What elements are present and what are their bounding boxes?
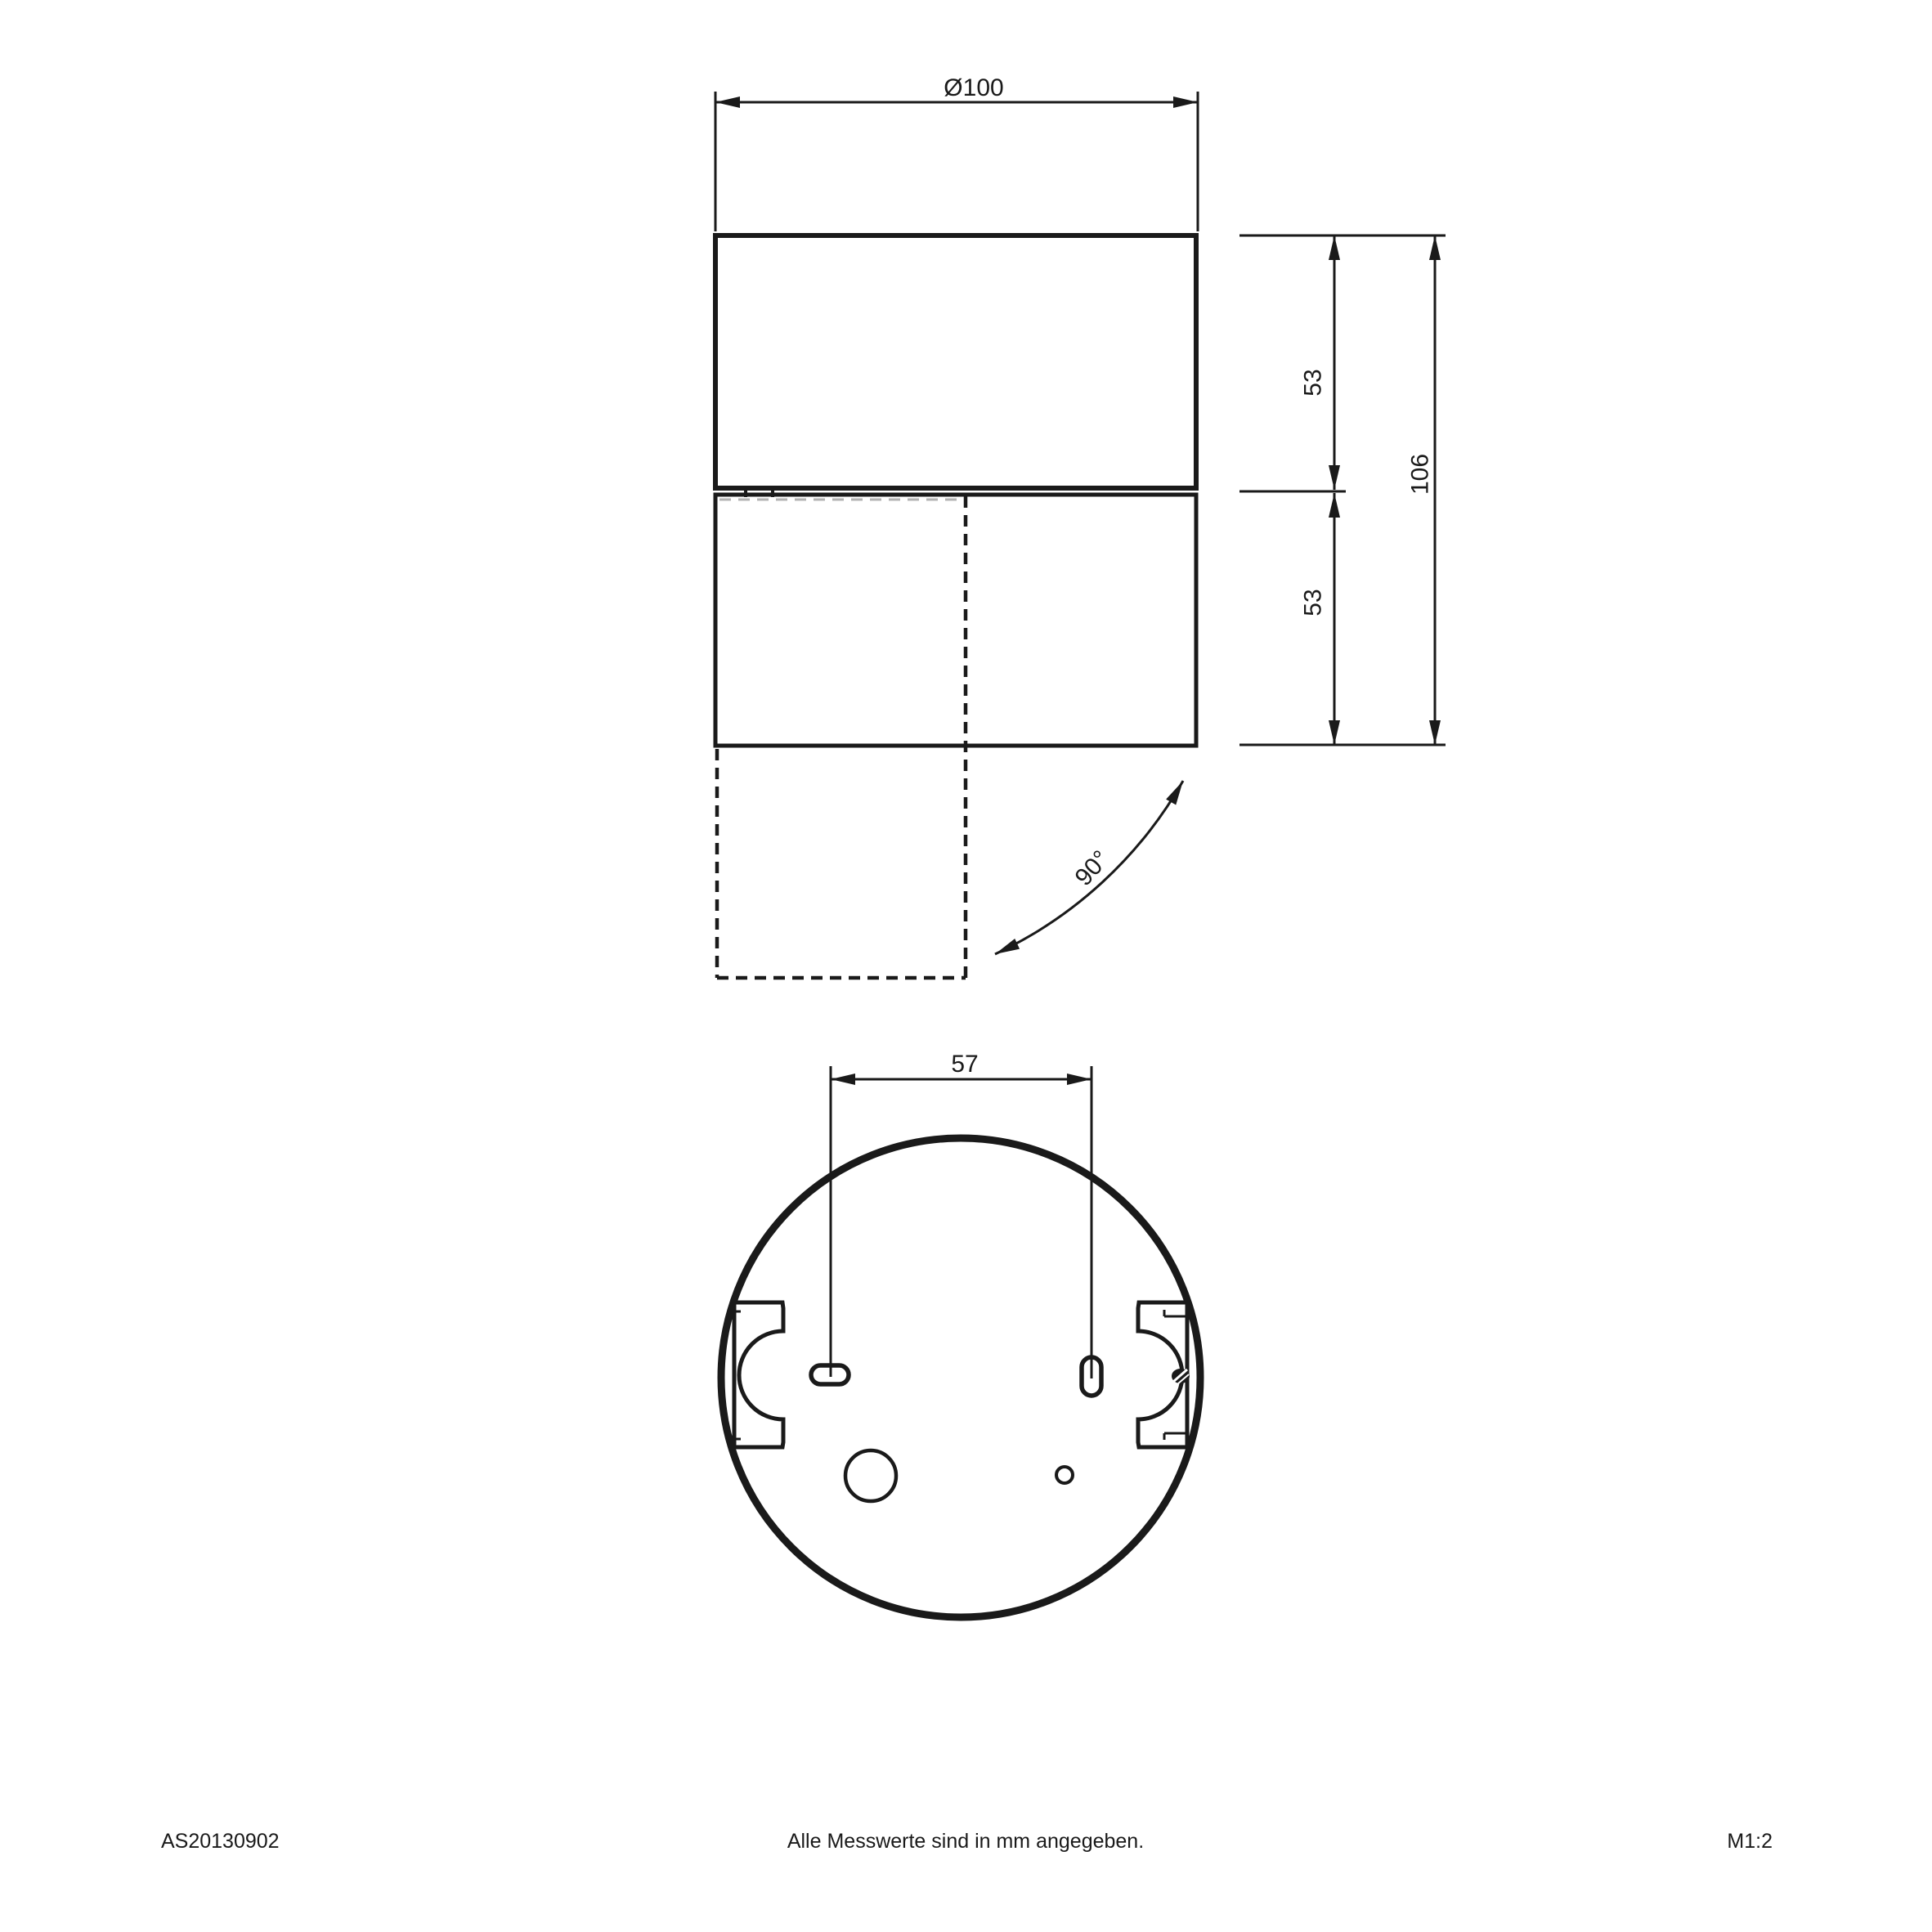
diameter-dimension: Ø100: [715, 74, 1198, 231]
side-view: [715, 235, 1196, 978]
upper-height-label: 53: [1300, 369, 1327, 396]
side-view-upper-body-outline: [715, 235, 1196, 488]
footer: AS20130902 Alle Messwerte sind in mm ang…: [161, 1830, 1773, 1853]
diameter-label: Ø100: [944, 74, 1003, 101]
slot-spacing-dimension: 57: [831, 1051, 1092, 1378]
bracket-left-outline: [734, 1302, 783, 1447]
screw-hole-small: [1056, 1467, 1073, 1483]
measurement-note: Alle Messwerte sind in mm angegeben.: [787, 1830, 1144, 1853]
total-height-label: 106: [1407, 454, 1434, 495]
technical-drawing: 90° Ø100 53 53 106: [0, 0, 1932, 1932]
tilt-angle-label: 90°: [1070, 845, 1115, 891]
bottom-view: [721, 1138, 1200, 1617]
lower-height-label: 53: [1300, 589, 1327, 616]
drawing-scale: M1:2: [1727, 1830, 1773, 1853]
side-view-lower-body-outline: [715, 495, 1196, 746]
base-plate-circle: [721, 1138, 1200, 1617]
height-dimensions: 53 53 106: [1239, 235, 1446, 745]
tilt-indicator: 90°: [995, 781, 1183, 954]
article-number: AS20130902: [161, 1830, 280, 1853]
cable-entry-hole: [845, 1450, 896, 1501]
slot-spacing-label: 57: [951, 1051, 978, 1078]
drawing-page: 90° Ø100 53 53 106: [0, 0, 1932, 1932]
